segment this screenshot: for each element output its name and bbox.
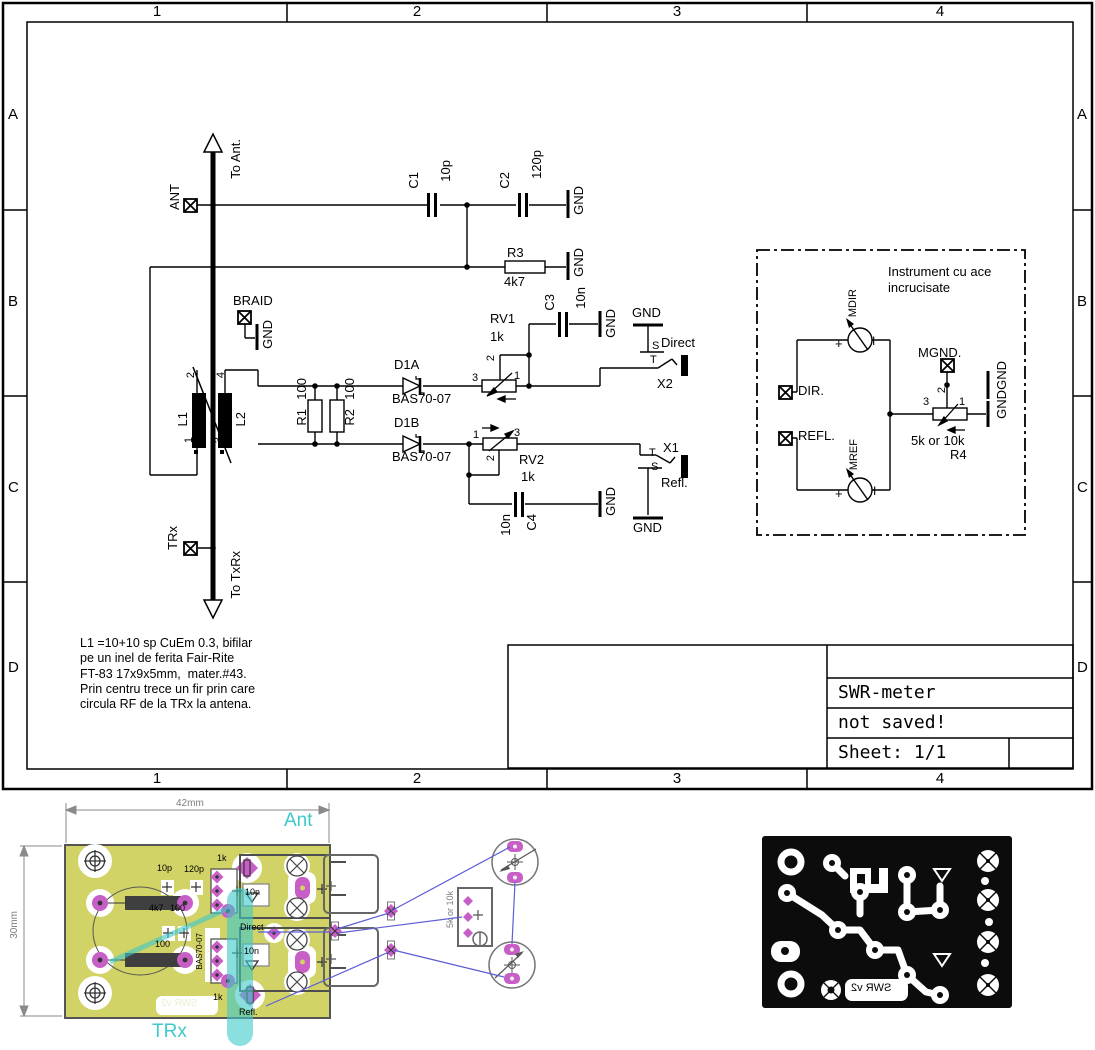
- pcb-board: [65, 844, 346, 1018]
- sheet-frame: [3, 3, 1092, 789]
- instrument-box: [757, 250, 1025, 535]
- diode-d1a: [403, 376, 424, 396]
- gnd-symbols: [257, 190, 988, 518]
- capacitor-plates: [427, 193, 568, 517]
- meter-mdir: [848, 323, 872, 352]
- title-block: [508, 645, 1073, 768]
- meter-mref-needle: [846, 468, 854, 478]
- offboard-components: [324, 839, 538, 988]
- offboard-pot-r4: [458, 888, 492, 946]
- diode-d1b: [403, 434, 424, 454]
- save-status: not saved!: [838, 714, 946, 732]
- copper-artwork: [762, 836, 1012, 1008]
- junction-dots: [210, 202, 950, 551]
- offboard-meter-2: [489, 942, 535, 988]
- project-title: SWR-meter: [838, 684, 936, 702]
- artwork-silk-box: [845, 979, 908, 1001]
- trimmer-arrows: [482, 373, 965, 451]
- meter-mref: [848, 473, 872, 502]
- jack-plugs: [681, 355, 688, 478]
- eda-editor-canvas: SWR-meter not saved! Sheet: 1/1 ANTTo An…: [0, 0, 1095, 1050]
- offboard-pin-pads: [328, 902, 398, 959]
- schematic-and-board-drawing: [0, 0, 1095, 1050]
- resistor-bodies: [308, 261, 967, 450]
- sheet-number: Sheet: 1/1: [838, 744, 946, 762]
- offboard-meter-1: [492, 839, 538, 885]
- meter-mdir-needle: [846, 318, 854, 328]
